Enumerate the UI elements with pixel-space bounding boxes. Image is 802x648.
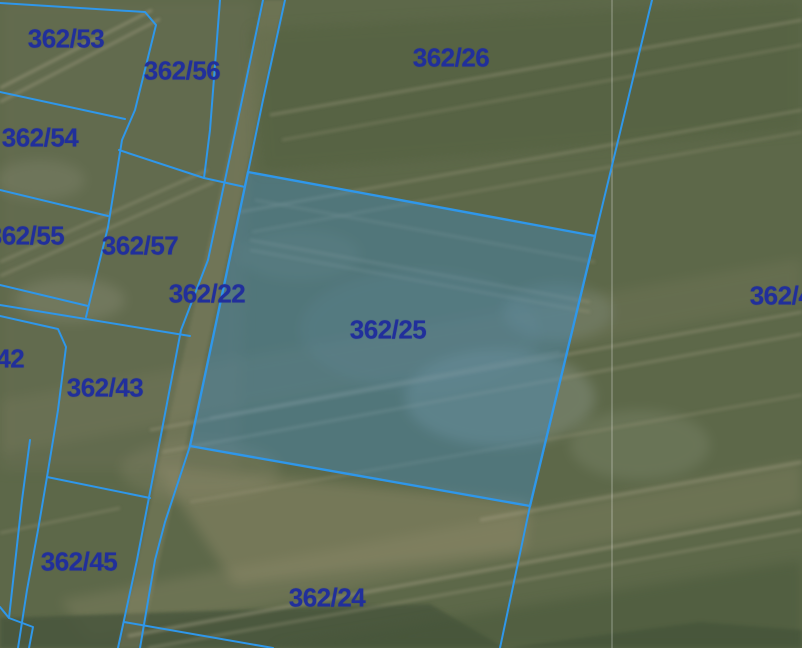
map-viewport[interactable]: 362/53362/56362/26362/54362/55362/57362/… (0, 0, 802, 648)
aerial-map (0, 0, 802, 648)
